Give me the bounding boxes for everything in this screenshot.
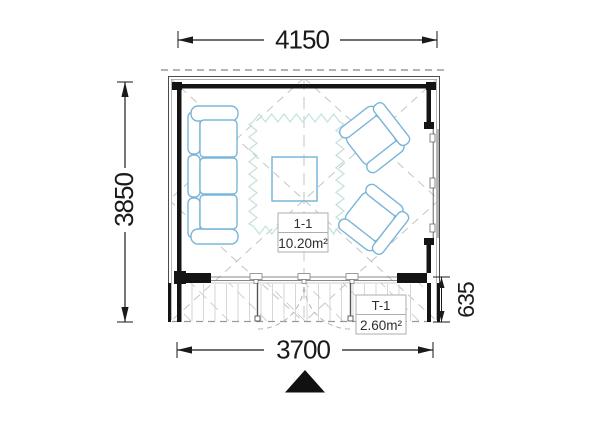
armchair-bottom	[336, 182, 412, 259]
floor-plan-drawing: 1-1 10.20m² T-1 2.60m² 4150 3850 370	[0, 0, 600, 424]
sofa	[188, 106, 238, 244]
entrance-triangle-icon	[285, 370, 325, 393]
floor-plan-canvas: 1-1 10.20m² T-1 2.60m² 4150 3850 370	[0, 0, 600, 424]
armchair-top	[337, 98, 413, 175]
terrace-deck	[150, 280, 462, 326]
terrace-area: 2.60m²	[360, 318, 403, 333]
room-id: 1-1	[294, 216, 313, 231]
dimension-right-value: 635	[453, 282, 479, 318]
terrace-label: T-1 2.60m²	[356, 295, 406, 334]
dimension-top-value: 4150	[275, 25, 329, 55]
dimension-bottom-value: 3700	[276, 335, 330, 365]
dimension-bottom: 3700	[177, 335, 433, 365]
room-area: 10.20m²	[278, 236, 328, 251]
dimension-left-value: 3850	[109, 173, 139, 227]
room-label: 1-1 10.20m²	[278, 213, 328, 252]
dimension-left: 3850	[109, 82, 139, 322]
dimension-top: 4150	[178, 25, 437, 55]
terrace-id: T-1	[372, 298, 391, 313]
